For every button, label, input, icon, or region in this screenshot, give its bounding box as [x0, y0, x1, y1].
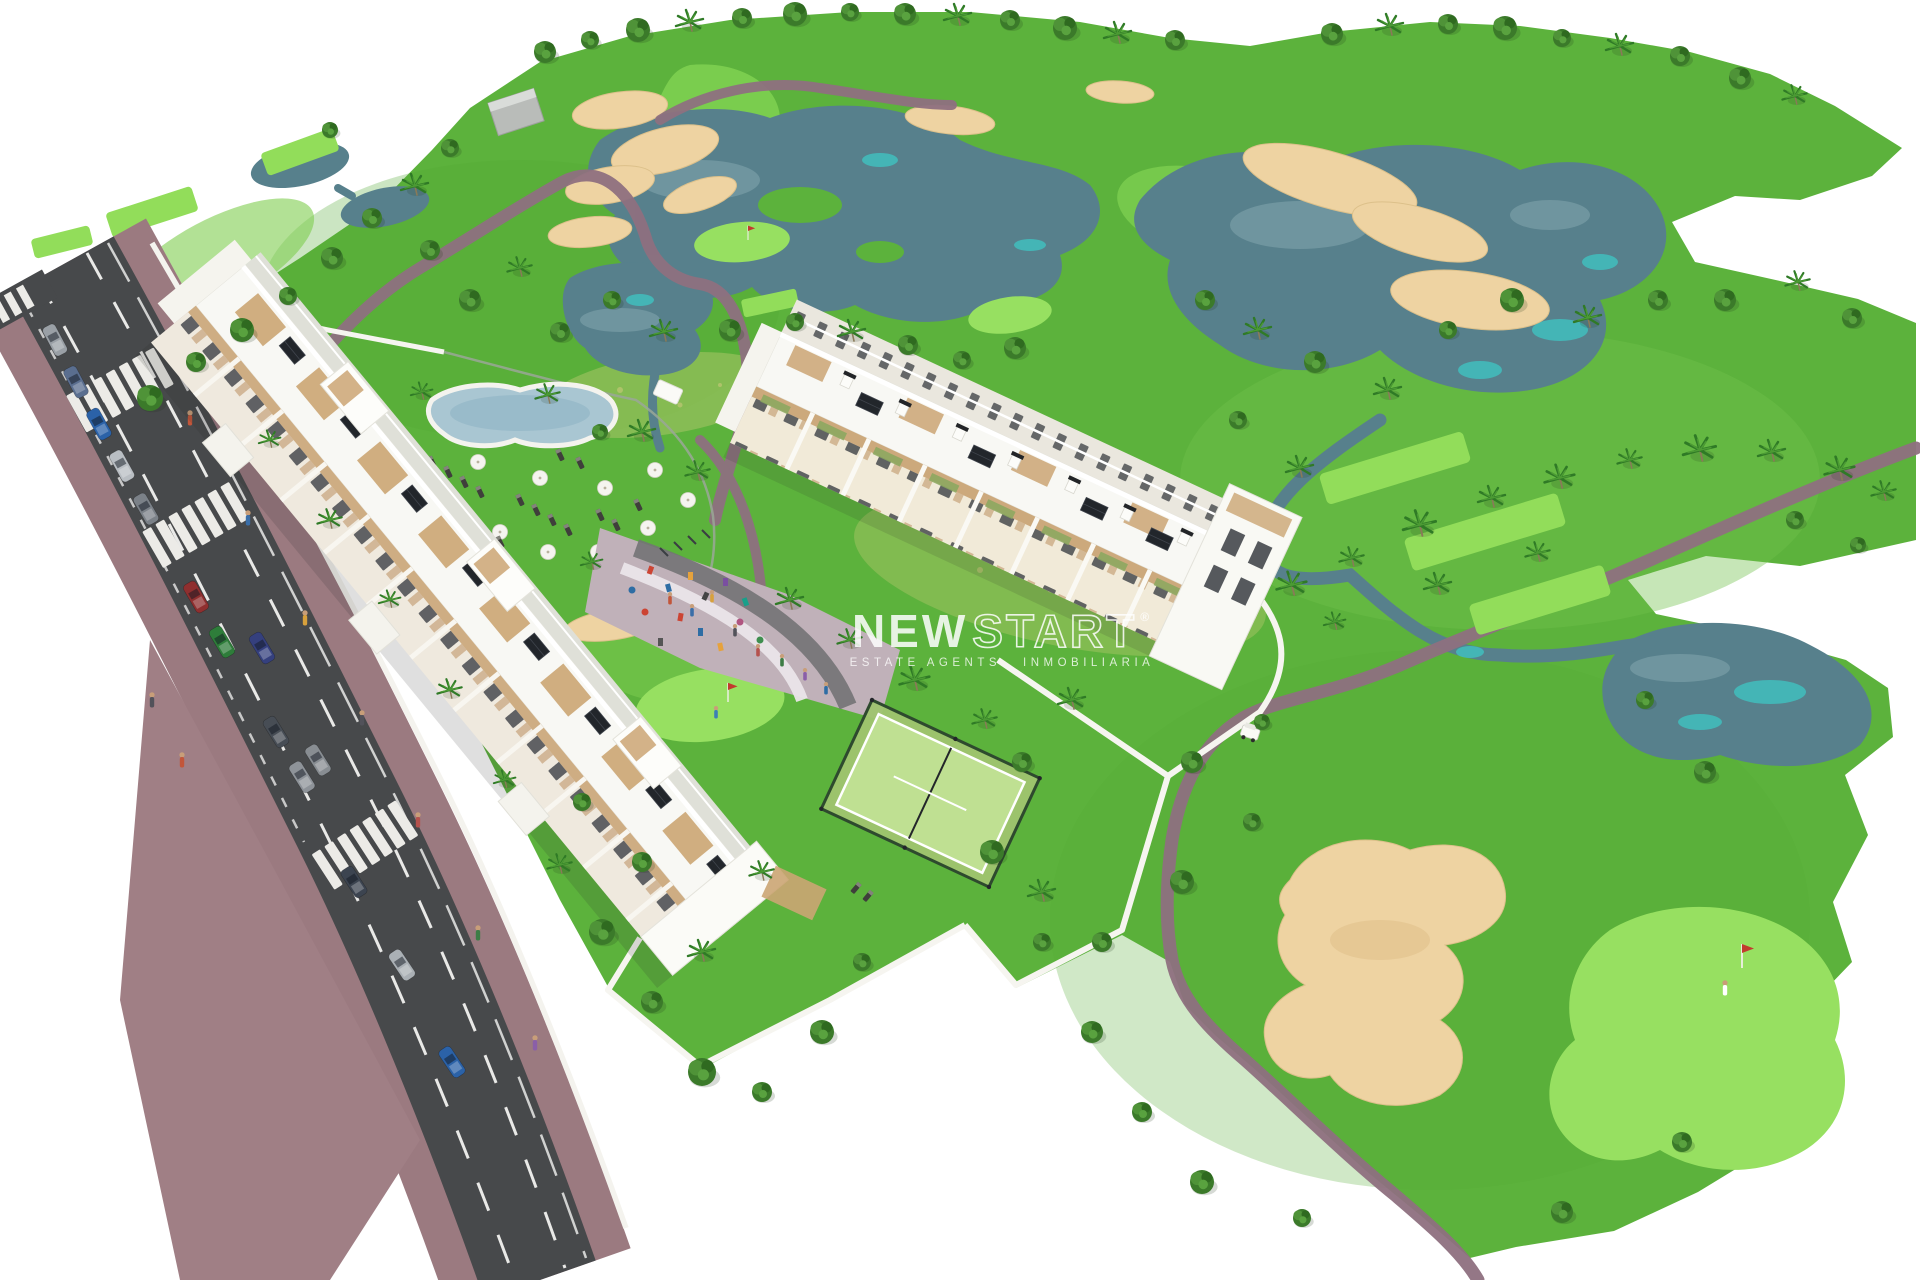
tagline-left: ESTATE AGENTS: [850, 657, 1001, 669]
render-canvas: NEWSTART® ESTATE AGENTSINMOBILIARIA: [0, 0, 1920, 1280]
golfer: [1722, 980, 1727, 995]
golf-resort-render: NEWSTART® ESTATE AGENTSINMOBILIARIA: [0, 0, 1920, 1280]
watermark-brand: NEWSTART®: [852, 605, 1152, 657]
tagline-right: INMOBILIARIA: [1023, 657, 1154, 669]
golfer: [714, 706, 718, 719]
brand-bold-text: NEW: [852, 605, 968, 657]
brand-outline-text: START: [972, 605, 1137, 657]
registered-mark: ®: [1140, 610, 1152, 624]
